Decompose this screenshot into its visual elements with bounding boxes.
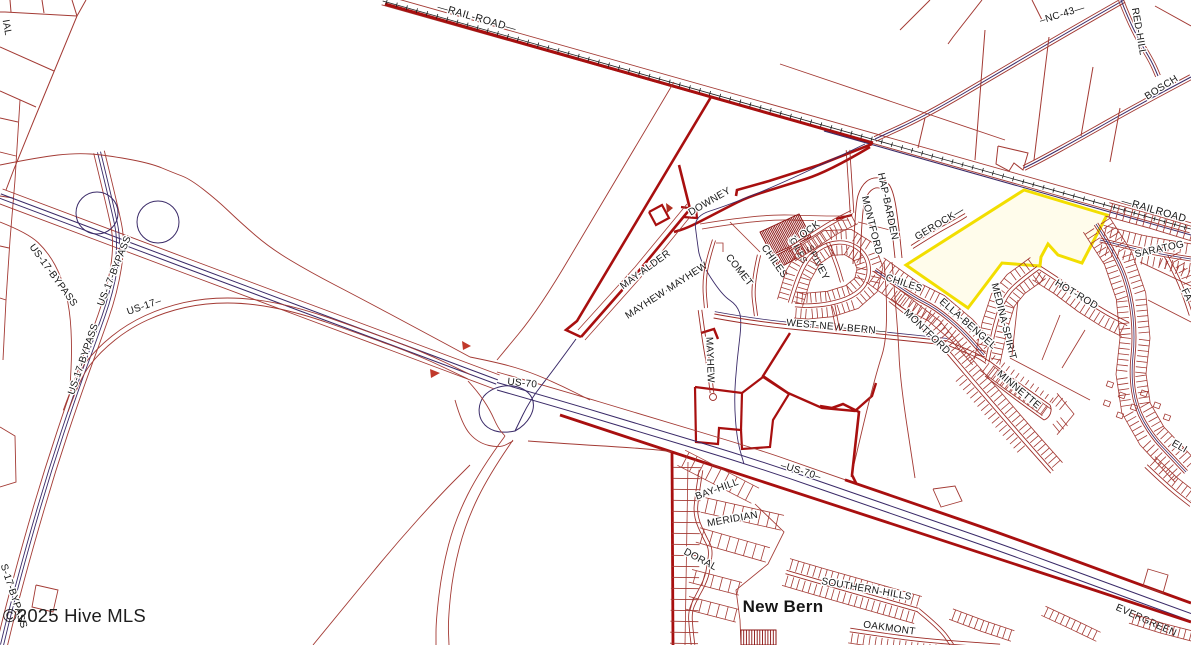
svg-text:MAYHEW: MAYHEW: [703, 337, 716, 384]
svg-text:©2025 Hive MLS: ©2025 Hive MLS: [3, 605, 146, 626]
svg-text:New Bern: New Bern: [743, 597, 824, 616]
svg-text:IAL: IAL: [0, 19, 13, 37]
